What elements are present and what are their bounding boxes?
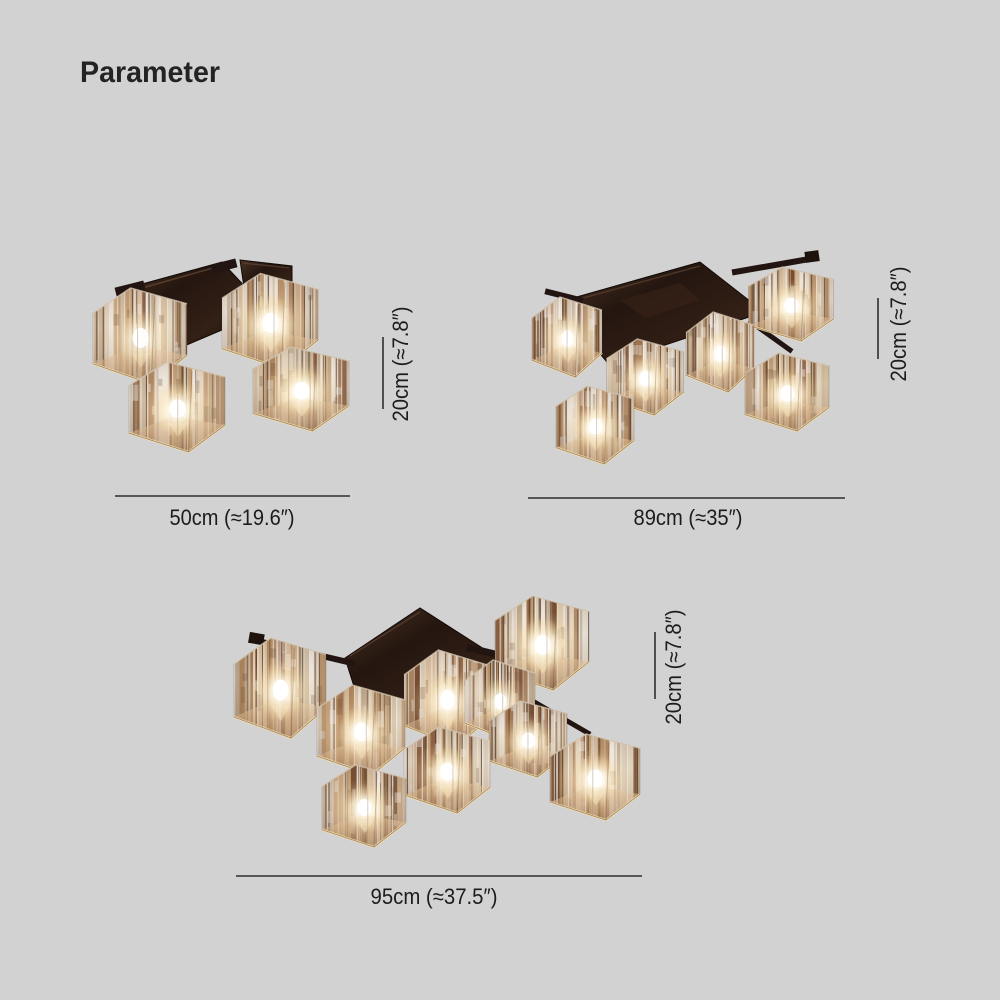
svg-text:89cm (≈35″): 89cm (≈35″) — [634, 505, 743, 530]
svg-text:20cm (≈7.8″): 20cm (≈7.8″) — [886, 267, 911, 382]
svg-text:50cm (≈19.6″): 50cm (≈19.6″) — [170, 505, 295, 530]
svg-text:20cm (≈7.8″): 20cm (≈7.8″) — [388, 307, 413, 422]
svg-text:95cm (≈37.5″): 95cm (≈37.5″) — [371, 884, 498, 909]
svg-text:20cm (≈7.8″): 20cm (≈7.8″) — [661, 610, 686, 725]
svg-text:Parameter: Parameter — [80, 56, 220, 89]
